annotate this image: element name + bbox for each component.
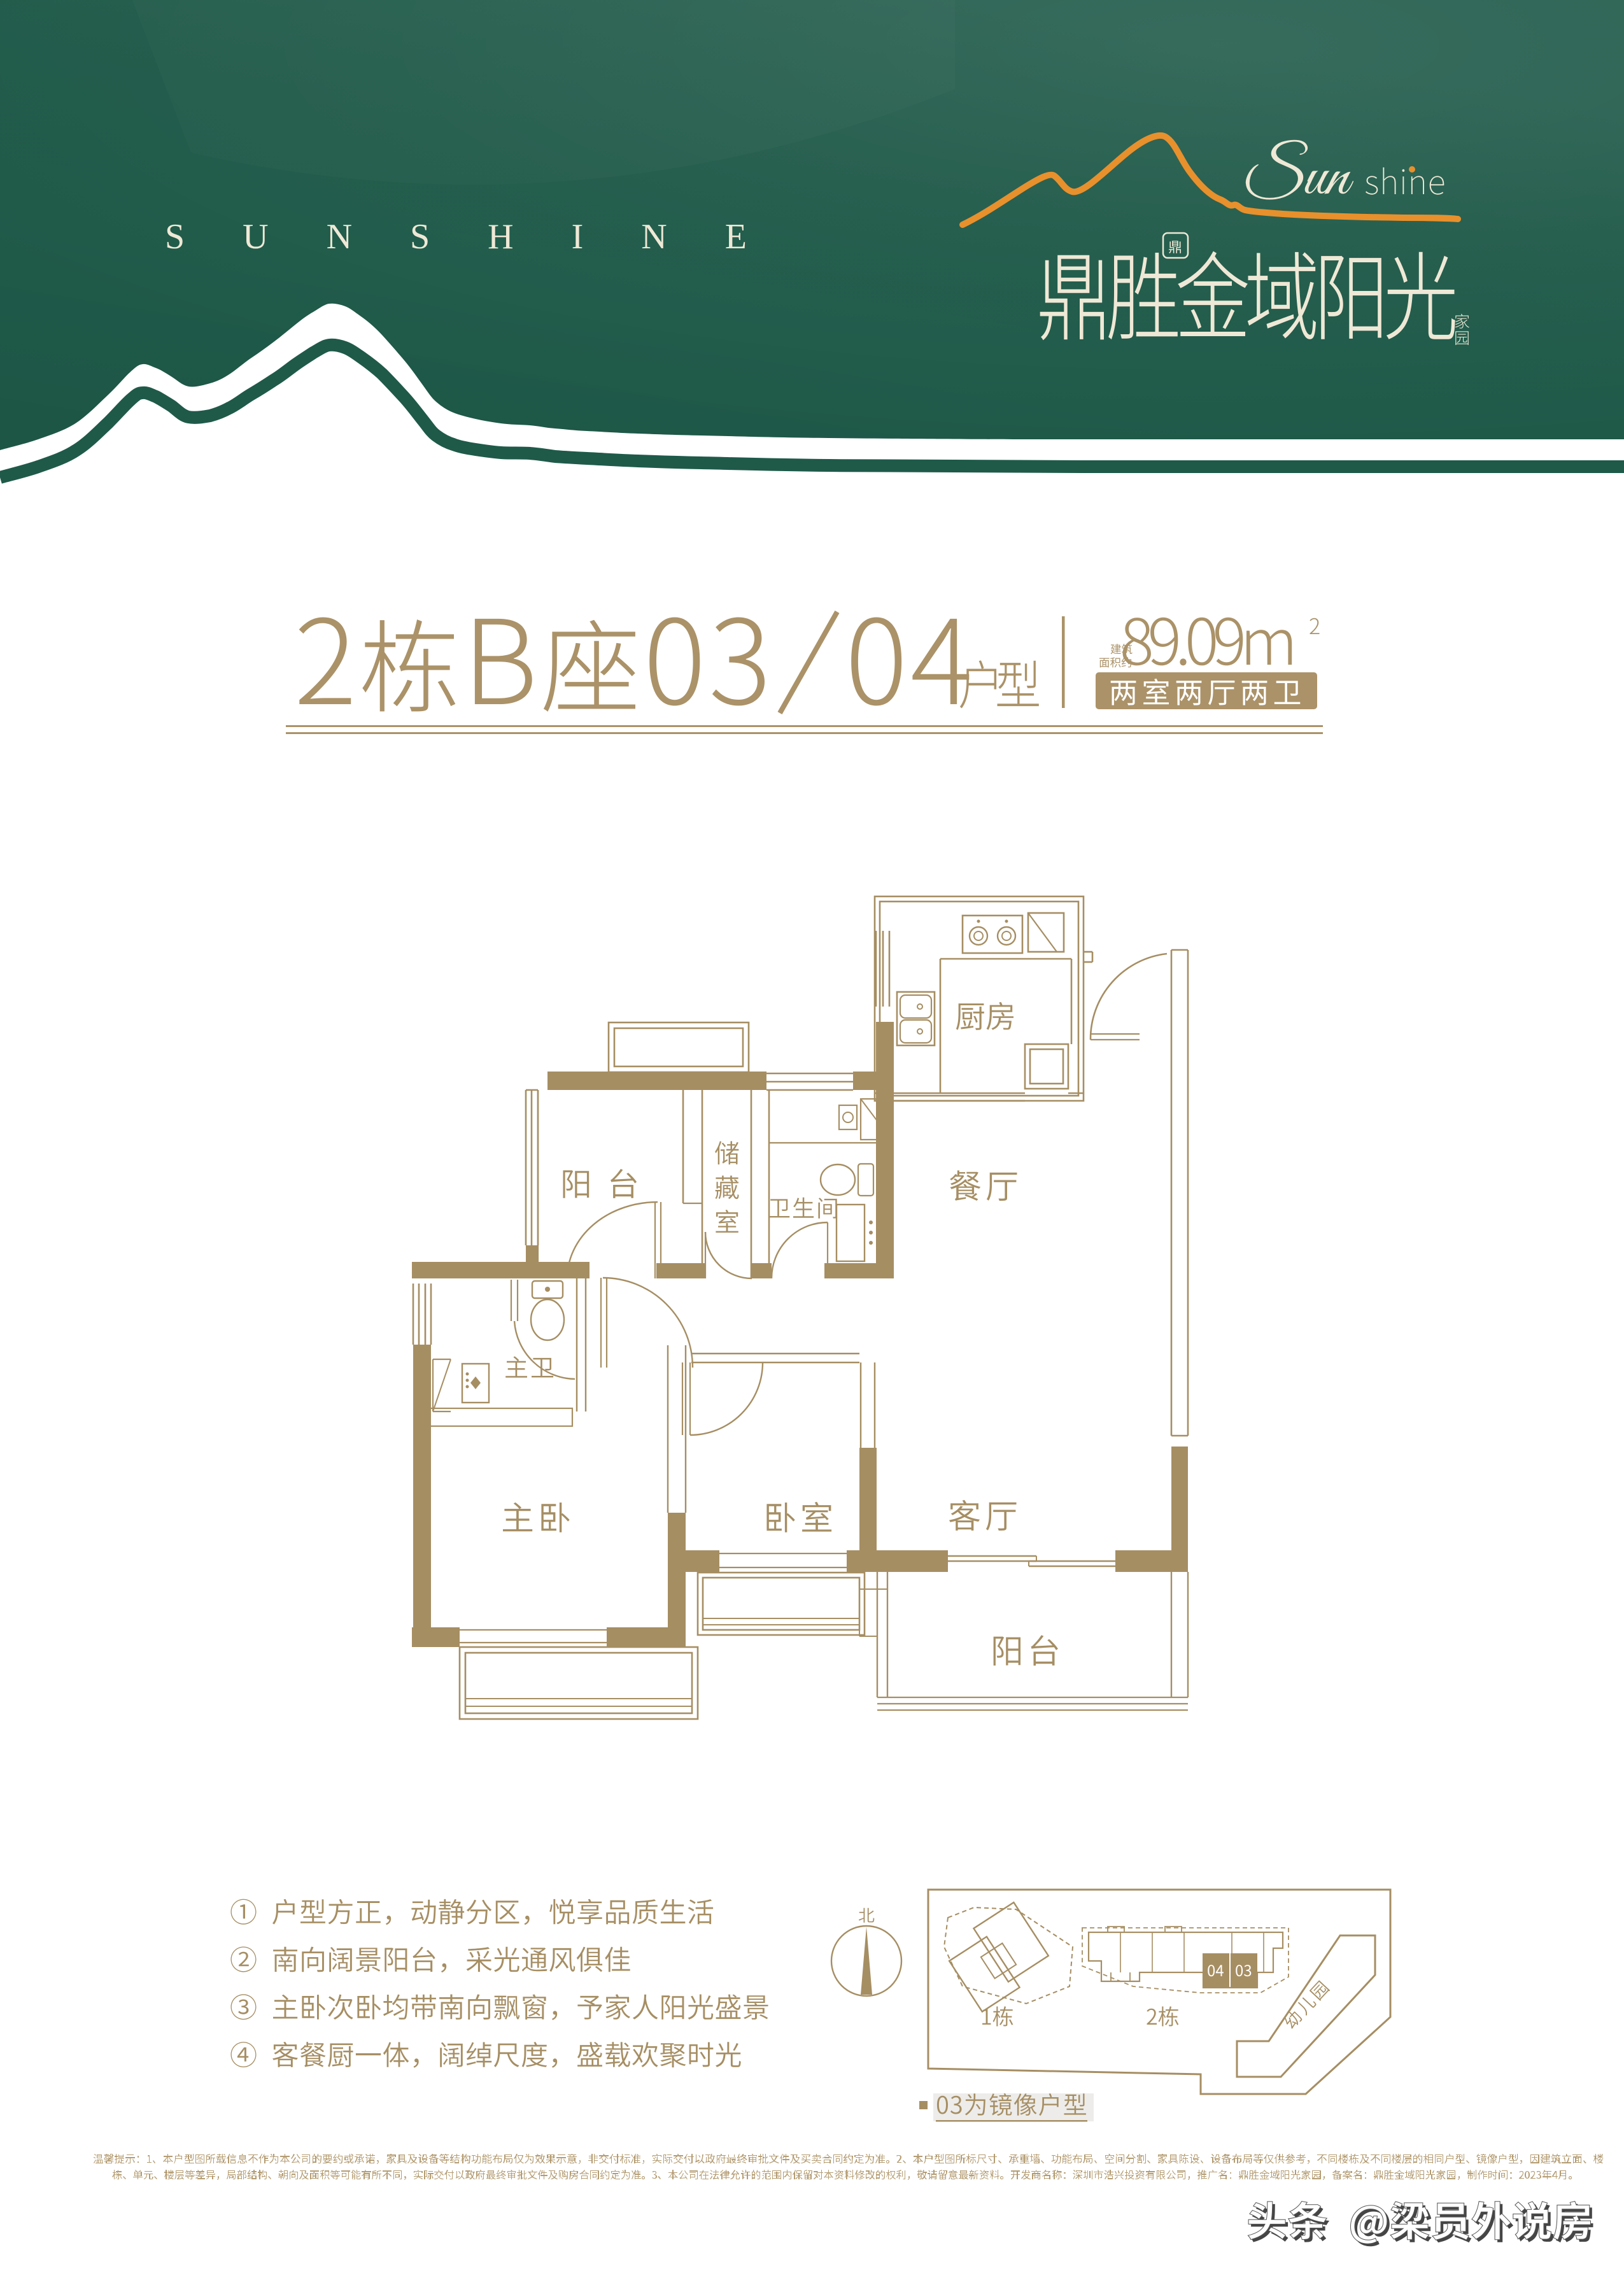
svg-text:SUNSHINE: SUNSHINE	[165, 217, 805, 257]
